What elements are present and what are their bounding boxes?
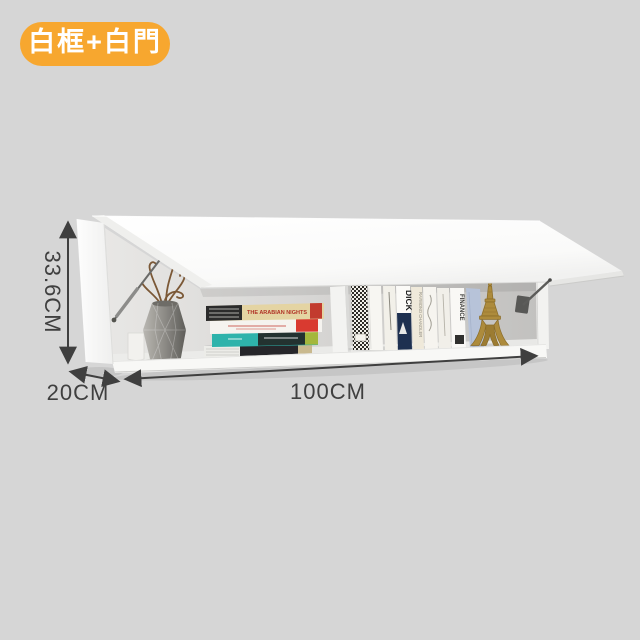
stacked-books: THE ARABIAN NIGHTS — [204, 303, 324, 362]
shelf-divider — [330, 286, 348, 355]
width-label: 100CM — [290, 379, 366, 404]
color-option-badge: 白框+白門 — [20, 22, 170, 66]
small-white-cup — [128, 333, 144, 361]
spine-text-finance: FINANCE — [458, 294, 464, 321]
badge-label: 白框+白門 — [28, 26, 162, 57]
depth-label: 20CM — [47, 380, 110, 405]
spine-text-chandler: RAYMOND CHANDLER — [418, 292, 423, 337]
gray-vase — [143, 303, 186, 363]
cabinet-illustration: THE ARABIAN NIGHTS DICK RAYMOND CHANDLER… — [0, 0, 640, 640]
product-dimension-image: THE ARABIAN NIGHTS DICK RAYMOND CHANDLER… — [0, 0, 640, 640]
stacked-book-title: THE ARABIAN NIGHTS — [247, 310, 307, 316]
height-label: 33.6CM — [40, 250, 65, 333]
